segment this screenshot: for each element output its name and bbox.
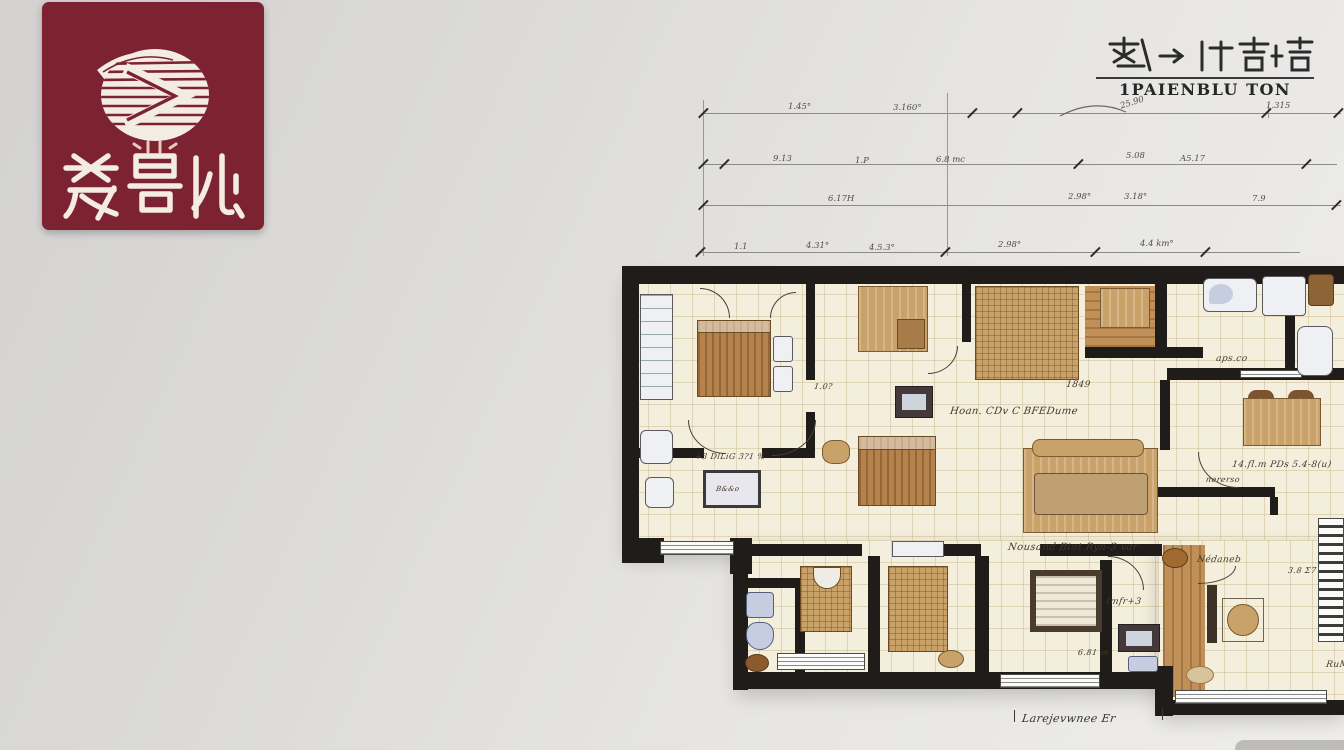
counter [892, 541, 944, 557]
room-label-right-2: nererso [1205, 475, 1240, 484]
dim-value: A5.17 [1180, 154, 1205, 164]
sofa-back-cushion [1032, 439, 1144, 457]
wall-step-left [622, 538, 664, 563]
nightstand [773, 336, 793, 362]
room-label-bottom-center: Nousand Bint Ryn-3 var [1007, 542, 1139, 553]
room-label-right-1: 14.fl.m PDs 5.4-8(u) [1231, 460, 1332, 470]
armchair [645, 477, 674, 508]
wall-int [1270, 497, 1278, 515]
dim-arc [1058, 96, 1128, 120]
dim-line-4 [700, 252, 1300, 253]
window [1000, 674, 1100, 688]
dim-value: 7.9 [1252, 194, 1266, 204]
tv-screen [1126, 631, 1152, 646]
bathtub [1262, 276, 1306, 316]
note-label-closet: Imfr+3 [1105, 597, 1142, 607]
bed-pillow [698, 321, 770, 333]
dim-value: 1.P [855, 156, 869, 166]
dim-value: 9.13 [773, 154, 792, 164]
bed [858, 436, 936, 506]
door-dim-label: 1.0? [813, 382, 833, 391]
bottom-annotation: Larejevwnee Er [1021, 712, 1116, 725]
title-latin-text: 1PAIENBLU TON [1096, 80, 1314, 99]
wall-int [1155, 284, 1167, 354]
desk-chair [1227, 604, 1259, 636]
dim-value: 2.98° [998, 240, 1021, 250]
table: B&&o [703, 470, 761, 508]
dim-label-wardrobe: 1849 [1065, 380, 1091, 390]
dim-label-bath: aps.co [1215, 354, 1248, 364]
dim-value: 3.160° [893, 103, 922, 113]
room-label-left: +3 DlLiG 3?1 % [694, 452, 766, 461]
title-cjk-glyphs [1104, 34, 1316, 76]
wall-int [740, 578, 798, 588]
wall-int [806, 284, 815, 380]
cabinet-small [1128, 656, 1158, 672]
dining-table [1243, 398, 1321, 446]
dim-value: 6.8 mc [936, 155, 965, 165]
vanity [800, 566, 852, 632]
window [1240, 370, 1302, 378]
logo-emblem-icon [93, 38, 213, 146]
window [777, 653, 865, 670]
toilet [746, 622, 774, 650]
wall-int [975, 556, 989, 674]
dim-line-1 [703, 113, 1341, 114]
dim-value: 1.45° [788, 102, 811, 112]
sofa-seat [1034, 473, 1148, 515]
sink-basin [1209, 284, 1233, 304]
dim-value: 4.5.3° [869, 243, 895, 253]
floor-plan-poster: 荎曼仳 栽→ 仠吉堵 1PAIENBLU TON [0, 0, 1344, 750]
dim-value: 4.4 km° [1140, 239, 1174, 249]
bath-cabinet [1308, 274, 1334, 306]
table-label: B&&o [715, 485, 740, 493]
bed [858, 286, 928, 352]
tub-vertical [1297, 326, 1333, 376]
vanity-basin [813, 567, 841, 589]
dim-value: 5.08 [1126, 151, 1145, 161]
wardrobe-large [975, 286, 1079, 380]
annotation-tick [1014, 710, 1015, 722]
logo-cjk-glyphs [62, 140, 246, 224]
wall-int [1085, 347, 1203, 358]
dim-line-2 [703, 164, 1337, 165]
dim-extension-line-mid [947, 93, 948, 256]
desk [1222, 598, 1264, 642]
tv-unit [1118, 624, 1160, 652]
dim-extension-line-left [703, 100, 704, 256]
sofa-large [1023, 448, 1158, 533]
area-label-right: 3.8 Σ7 [1287, 566, 1317, 575]
tv-screen [902, 394, 926, 410]
bed [888, 566, 948, 652]
window [660, 541, 734, 555]
nightstand [773, 366, 793, 392]
room-label-center: Hoan. CDv C BFEDume [949, 406, 1078, 417]
window [1175, 690, 1327, 704]
wall-int [868, 556, 880, 674]
dim-value: 4.31° [806, 241, 829, 251]
washer [746, 592, 774, 618]
dim-line-3 [703, 205, 1341, 206]
wall-int [1150, 487, 1275, 497]
armchair [640, 430, 673, 464]
dim-value: 1.315 [1266, 101, 1290, 111]
wall-int [962, 284, 971, 342]
dim-value: 2.98° [1068, 192, 1091, 202]
room-label-corridor: Nédaneb [1196, 555, 1241, 565]
window-shelf-right [1318, 518, 1344, 642]
basin-round [745, 654, 769, 672]
plant-pot [1162, 548, 1188, 568]
bed [697, 320, 771, 397]
wall-left [622, 266, 639, 563]
shelf [1207, 585, 1217, 643]
annotation-tick [1162, 708, 1163, 720]
dim-value: 6.17H [828, 194, 854, 204]
rug-oval [1186, 666, 1214, 684]
bathroom-sink [1203, 278, 1257, 312]
wall-int [1160, 380, 1170, 450]
label-right-edge: RuM [1325, 660, 1344, 670]
bed-frame [1030, 570, 1102, 632]
gray-blob [1235, 740, 1344, 750]
dim-value: 3.18° [1124, 192, 1147, 202]
armchair [822, 440, 850, 464]
stool [938, 650, 964, 668]
dim-label-tv: 6.81 m [1077, 648, 1109, 657]
hall-cabinet [1100, 288, 1150, 328]
wall-int [752, 544, 862, 556]
tv-unit [895, 386, 933, 418]
bed-pillow [859, 437, 935, 450]
title-underline [1096, 77, 1314, 79]
dim-value: 1.1 [734, 242, 748, 252]
bed-blanket [897, 319, 925, 349]
logo-badge: 荎曼仳 [42, 2, 264, 230]
wardrobe [640, 294, 673, 400]
